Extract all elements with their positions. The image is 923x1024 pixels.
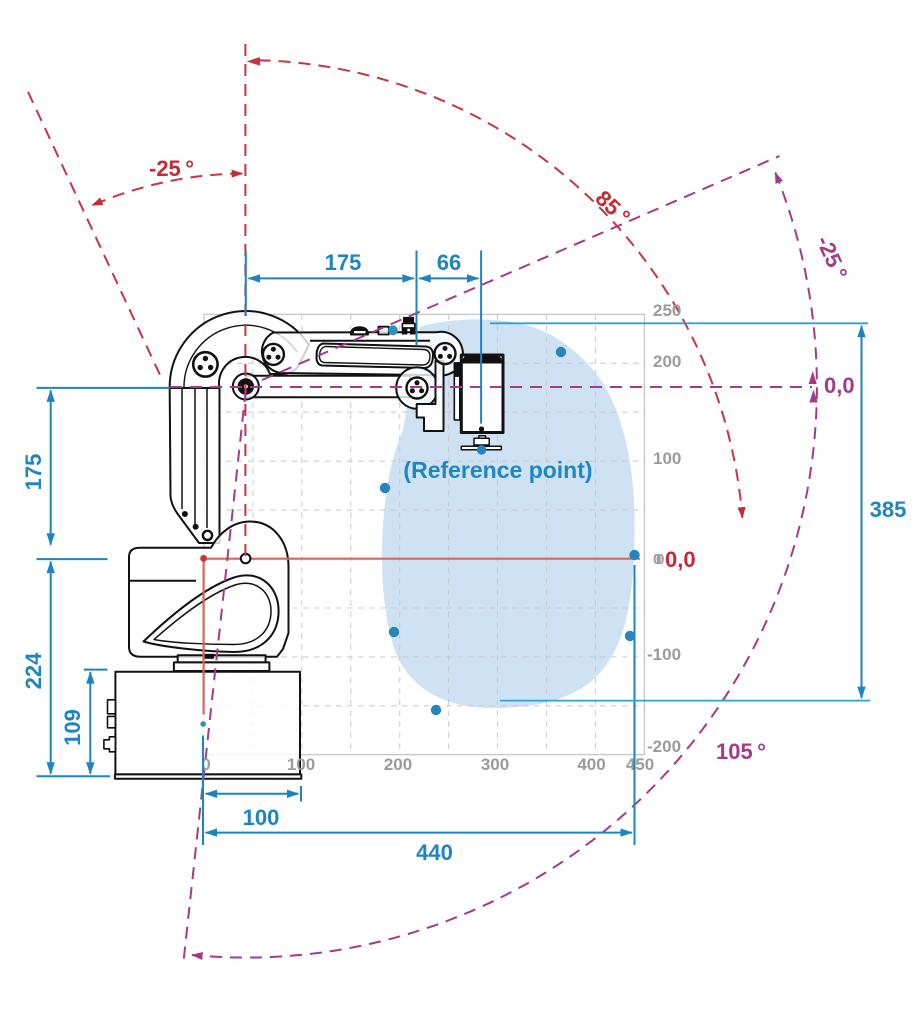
- svg-text:100: 100: [243, 805, 280, 830]
- svg-text:400: 400: [577, 755, 605, 774]
- svg-text:450: 450: [626, 755, 654, 774]
- svg-text:250: 250: [653, 301, 681, 320]
- svg-text:200: 200: [653, 352, 681, 371]
- svg-text:105 °: 105 °: [716, 739, 766, 764]
- svg-text:0: 0: [656, 551, 664, 568]
- svg-text:100: 100: [653, 449, 681, 468]
- svg-text:224: 224: [21, 652, 46, 689]
- svg-text:100: 100: [287, 755, 315, 774]
- svg-text:85 °: 85 °: [591, 185, 636, 229]
- svg-text:109: 109: [60, 709, 85, 746]
- svg-text:0,0: 0,0: [824, 373, 855, 398]
- svg-text:66: 66: [437, 250, 461, 275]
- svg-text:-200: -200: [647, 737, 681, 756]
- svg-text:175: 175: [325, 250, 362, 275]
- svg-text:440: 440: [416, 840, 453, 865]
- svg-text:385: 385: [870, 497, 907, 522]
- svg-text:175: 175: [21, 454, 46, 491]
- svg-text:0,0: 0,0: [665, 547, 696, 572]
- svg-text:(Reference point): (Reference point): [403, 457, 592, 483]
- svg-text:-100: -100: [647, 645, 681, 664]
- svg-text:-25 °: -25 °: [149, 156, 194, 181]
- svg-text:200: 200: [384, 755, 412, 774]
- svg-text:-25 °: -25 °: [811, 232, 852, 283]
- svg-text:300: 300: [481, 755, 509, 774]
